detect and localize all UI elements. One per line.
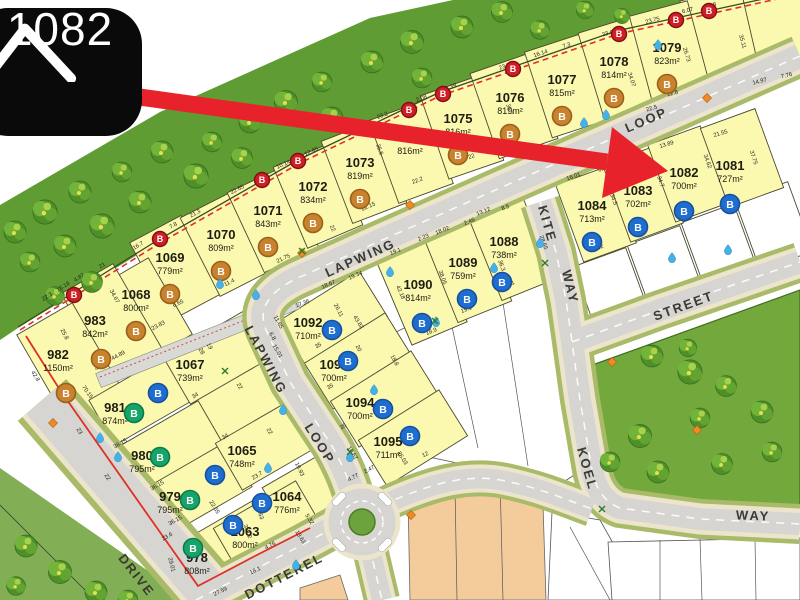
lot-badge-letter: B [229, 520, 237, 532]
lot-badge-letter: B [217, 266, 225, 278]
lot-area: 759m² [450, 271, 476, 281]
lot-badge: B [127, 322, 146, 341]
tree-icon [4, 221, 26, 243]
lot-area: 874m² [102, 416, 128, 426]
boundary-marker-letter: B [616, 29, 623, 39]
lot-area: 814m² [405, 293, 431, 303]
tree-icon [90, 214, 114, 238]
lot-number: 1078 [600, 54, 629, 69]
tree-icon [184, 164, 208, 188]
boundary-marker-letter: B [510, 64, 517, 74]
tree-icon [716, 376, 737, 397]
lot-badge: B [149, 384, 168, 403]
lot-number: 1081 [716, 158, 745, 173]
lot-area: 815m² [549, 88, 575, 98]
lot-badge: B [57, 384, 76, 403]
tree-icon [400, 30, 423, 53]
lot-badge-letter: B [344, 356, 352, 368]
lot-badge-letter: B [418, 318, 426, 330]
lot-badge-letter: B [264, 242, 272, 254]
lot-badge-letter: B [186, 495, 194, 507]
lot-badge: B [339, 352, 358, 371]
tree-icon [112, 162, 132, 182]
tree-icon [678, 360, 702, 384]
lot-area: 809m² [208, 243, 234, 253]
lot-badge-letter: B [406, 431, 414, 443]
tree-icon [679, 339, 697, 357]
tree-icon [7, 577, 26, 596]
lot-area: 727m² [717, 174, 743, 184]
boundary-marker: B [402, 103, 417, 118]
boundary-marker-letter: B [259, 175, 266, 185]
lot-number: 1077 [548, 72, 577, 87]
lot-badge: B [151, 448, 170, 467]
lot-badge-letter: B [189, 543, 197, 555]
lot-area: 702m² [625, 199, 651, 209]
lot-badge: B [629, 218, 648, 237]
lot-badge: B [304, 214, 323, 233]
lot-badge-letter: B [154, 388, 162, 400]
boundary-marker-letter: B [440, 89, 447, 99]
tree-icon [129, 191, 151, 213]
lot-number: 1090 [404, 277, 433, 292]
boundary-marker: B [506, 62, 521, 77]
lot-badge: B [253, 494, 272, 513]
lot-badge: B [351, 190, 370, 209]
lot-number: 981 [104, 400, 126, 415]
lot-area: 700m² [321, 373, 347, 383]
lot-number: 1075 [444, 111, 473, 126]
lot-number: 1064 [273, 489, 303, 504]
lot-badge: B [413, 314, 432, 333]
boundary-marker-letter: B [706, 6, 713, 16]
lot-area: 819m² [347, 171, 373, 181]
lot-area: 738m² [491, 250, 517, 260]
lot-area: 843m² [255, 219, 281, 229]
tree-icon [647, 461, 669, 483]
future-lot-area [608, 538, 800, 600]
lot-badge-letter: B [663, 79, 671, 91]
lot-badge-letter: B [680, 206, 688, 218]
lot-area: 842m² [82, 329, 108, 339]
lot-number: 1095 [374, 434, 403, 449]
lot-badge: B [675, 202, 694, 221]
boundary-marker: B [669, 13, 684, 28]
tree-icon [82, 272, 103, 293]
tree-icon [751, 401, 773, 423]
lot-area: 711m² [376, 450, 401, 460]
lot-badge-letter: B [506, 129, 514, 141]
tree-icon [232, 148, 253, 169]
boundary-marker-letter: B [673, 15, 680, 25]
lot-badge-letter: B [211, 470, 219, 482]
lot-badge: B [374, 400, 393, 419]
lot-number: 1071 [254, 203, 283, 218]
lot-badge-letter: B [558, 111, 566, 123]
estate-lot-map: LAPWINGLOOPLAPWINGLOOPKITEWAYSTREETKOELW… [0, 0, 800, 600]
boundary-marker: B [702, 4, 717, 19]
lot-badge-letter: B [634, 222, 642, 234]
lot-badge-letter: B [166, 289, 174, 301]
tree-icon [54, 235, 76, 257]
lot-number: 1089 [449, 255, 478, 270]
lot-badge: B [458, 290, 477, 309]
lot-number: 1084 [578, 198, 608, 213]
lot-area: 713m² [579, 214, 605, 224]
tree-icon [531, 21, 550, 40]
lot-badge-letter: B [62, 388, 70, 400]
lot-badge-letter: B [454, 150, 462, 162]
lot-badge: B [658, 75, 677, 94]
lot-badge-letter: B [258, 498, 266, 510]
lot-number: 1069 [156, 250, 185, 265]
lot-number: 1073 [346, 155, 375, 170]
lot-number: 1070 [207, 227, 236, 242]
lot-area: 823m² [654, 56, 680, 66]
lot-badge-letter: B [726, 199, 734, 211]
lot-badge: B [224, 516, 243, 535]
lot-area: 776m² [274, 505, 300, 515]
lot-badge-letter: B [379, 404, 387, 416]
lot-badge: B [161, 285, 180, 304]
tree-icon [312, 72, 332, 92]
tree-icon [15, 535, 37, 557]
lot-badge: B [583, 233, 602, 252]
tree-icon [361, 51, 383, 73]
boundary-marker: B [153, 232, 168, 247]
lot-badge: B [323, 321, 342, 340]
tree-icon [600, 452, 620, 472]
tree-icon [151, 141, 173, 163]
lot-area: 700m² [347, 411, 373, 421]
lot-area: 710m² [295, 331, 321, 341]
lot-badge-letter: B [328, 325, 336, 337]
lot-area: 814m² [601, 70, 627, 80]
lot-number: 982 [47, 347, 69, 362]
tree-icon [69, 181, 91, 203]
lot-badge: B [259, 238, 278, 257]
tree-icon [762, 442, 782, 462]
lot-number: 980 [131, 448, 153, 463]
boundary-marker-letter: B [295, 156, 302, 166]
lot-number: 1076 [496, 90, 525, 105]
lot-area: 819m² [497, 106, 523, 116]
lot-badge-letter: B [463, 294, 471, 306]
lot-number: 1072 [299, 179, 328, 194]
lot-number: 1082 [670, 165, 699, 180]
lot-badge: B [553, 107, 572, 126]
boundary-marker-letter: B [157, 234, 164, 244]
boundary-marker: B [255, 173, 270, 188]
lot-badge-letter: B [309, 218, 317, 230]
boundary-marker-letter: B [406, 105, 413, 115]
lot-badge-letter: B [156, 452, 164, 464]
roundabout-island [349, 509, 375, 535]
lot-badge-letter: B [132, 326, 140, 338]
lot-badge-letter: B [97, 354, 105, 366]
lot-area: 739m² [177, 373, 203, 383]
boundary-marker: B [67, 288, 82, 303]
lot-number: 1068 [122, 287, 151, 302]
lot-badge: B [125, 404, 144, 423]
lot-badge: B [401, 427, 420, 446]
lot-number: 1088 [490, 234, 519, 249]
tree-icon [492, 2, 513, 23]
lot-badge: B [721, 195, 740, 214]
lot-badge-letter: B [356, 194, 364, 206]
lot-number: 1065 [228, 443, 257, 458]
tree-icon [85, 581, 107, 600]
lot-badge: B [184, 539, 203, 558]
tree-icon [690, 408, 710, 428]
tree-icon [614, 8, 629, 23]
tree-icon [451, 16, 473, 38]
lot-badge-letter: B [498, 277, 506, 289]
tree-icon [412, 68, 432, 88]
tree-icon [628, 424, 651, 447]
lot-badge: B [605, 89, 624, 108]
lot-number: 1067 [176, 357, 205, 372]
lot-area: 748m² [229, 459, 255, 469]
lot-badge-letter: B [588, 237, 596, 249]
tree-icon [33, 200, 57, 224]
boundary-marker: B [436, 87, 451, 102]
lot-area: 834m² [300, 195, 326, 205]
lot-badge: B [493, 273, 512, 292]
lot-area: 816m² [397, 146, 423, 156]
lot-area: 800m² [232, 540, 258, 550]
lot-number: 1092 [294, 315, 323, 330]
boundary-marker: B [612, 27, 627, 42]
lot-area: 700m² [671, 181, 697, 191]
lot-badge: B [181, 491, 200, 510]
tree-icon [576, 1, 594, 19]
lot-badge: B [212, 262, 231, 281]
house-roof-icon [0, 16, 92, 82]
boundary-marker-letter: B [71, 290, 78, 300]
lot-badge-letter: B [130, 408, 138, 420]
lot-area: 779m² [157, 266, 183, 276]
tree-icon [712, 454, 733, 475]
tree-icon [48, 560, 71, 583]
tree-icon [202, 132, 222, 152]
tree-icon [641, 345, 663, 367]
lot-badge-letter: B [610, 93, 618, 105]
tree-icon [20, 252, 40, 272]
lot-number: 983 [84, 313, 106, 328]
lot-badge: B [206, 466, 225, 485]
orange-lot-area [300, 575, 348, 600]
lot-callout: 1082 [0, 8, 142, 136]
lot-area: 795m² [157, 505, 183, 515]
lot-number: 1094 [346, 395, 376, 410]
lot-badge: B [92, 350, 111, 369]
street-label-way: WAY [736, 507, 771, 523]
lot-area: 795m² [129, 464, 155, 474]
lot-number: 979 [159, 489, 181, 504]
lot-area: 800m² [123, 303, 149, 313]
boundary-marker: B [291, 154, 306, 169]
lot-area: 808m² [184, 566, 210, 576]
lot-area: 1150m² [43, 363, 73, 373]
